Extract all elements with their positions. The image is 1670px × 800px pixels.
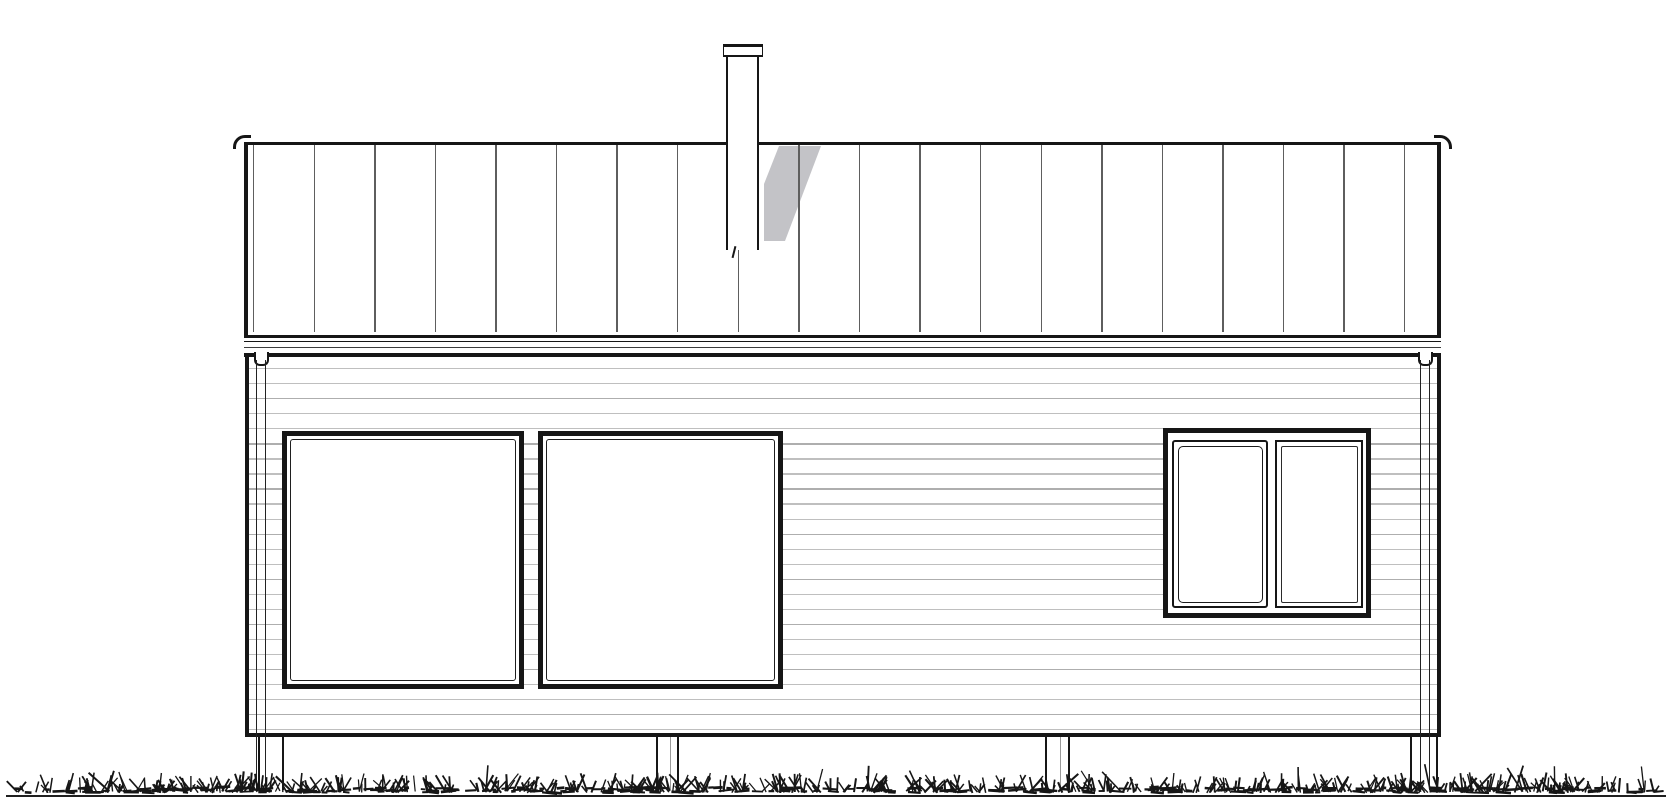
roof-seam <box>677 145 678 332</box>
chimney-rain-cap <box>723 44 763 57</box>
fixed-pane <box>1275 440 1363 608</box>
wall-top-trim-line <box>244 353 1441 357</box>
casement-window-set <box>1163 428 1371 618</box>
siding-line <box>249 413 1437 414</box>
siding-line <box>249 383 1437 384</box>
roof-seam <box>1283 145 1284 332</box>
openable-casement-pane <box>1172 440 1268 608</box>
roof-seam <box>1404 145 1405 332</box>
fixed-sash <box>1281 446 1358 603</box>
roof-seam <box>1222 145 1223 332</box>
downpipe-right <box>1420 360 1430 790</box>
downpipe-left <box>256 360 266 790</box>
siding-line <box>249 714 1437 715</box>
roof-eave-corner-right <box>1434 135 1452 149</box>
roof-seam <box>435 145 436 332</box>
siding-line <box>249 398 1437 399</box>
chimney-shadow <box>760 145 840 247</box>
roof-seam <box>556 145 557 332</box>
roof-seam <box>919 145 920 332</box>
window-glass <box>546 439 775 681</box>
window-glass <box>290 439 516 681</box>
roof-seam <box>1101 145 1102 332</box>
roof-seam <box>374 145 375 332</box>
gutter-line <box>244 347 1441 348</box>
roof-seam <box>495 145 496 332</box>
roof-seam <box>616 145 617 332</box>
roof-seam <box>1162 145 1163 332</box>
roof-seam <box>314 145 315 332</box>
roof-seam <box>798 145 799 332</box>
siding-line <box>249 368 1437 369</box>
siding-line <box>249 699 1437 700</box>
roof-seam <box>980 145 981 332</box>
roof-seam <box>253 145 254 332</box>
siding-line <box>249 729 1437 730</box>
roof <box>244 142 1441 338</box>
picture-window-right <box>538 431 783 689</box>
chimney-flue <box>726 56 759 250</box>
roof-seam <box>1041 145 1042 332</box>
grass-ground <box>0 754 1670 800</box>
roof-seam <box>1343 145 1344 332</box>
fascia-board-line <box>244 341 1441 343</box>
roof-eave-corner-left <box>233 135 251 149</box>
casement-sash <box>1178 446 1263 603</box>
roof-seam <box>859 145 860 332</box>
elevation-drawing-canvas <box>0 0 1670 800</box>
picture-window-left <box>282 431 524 689</box>
